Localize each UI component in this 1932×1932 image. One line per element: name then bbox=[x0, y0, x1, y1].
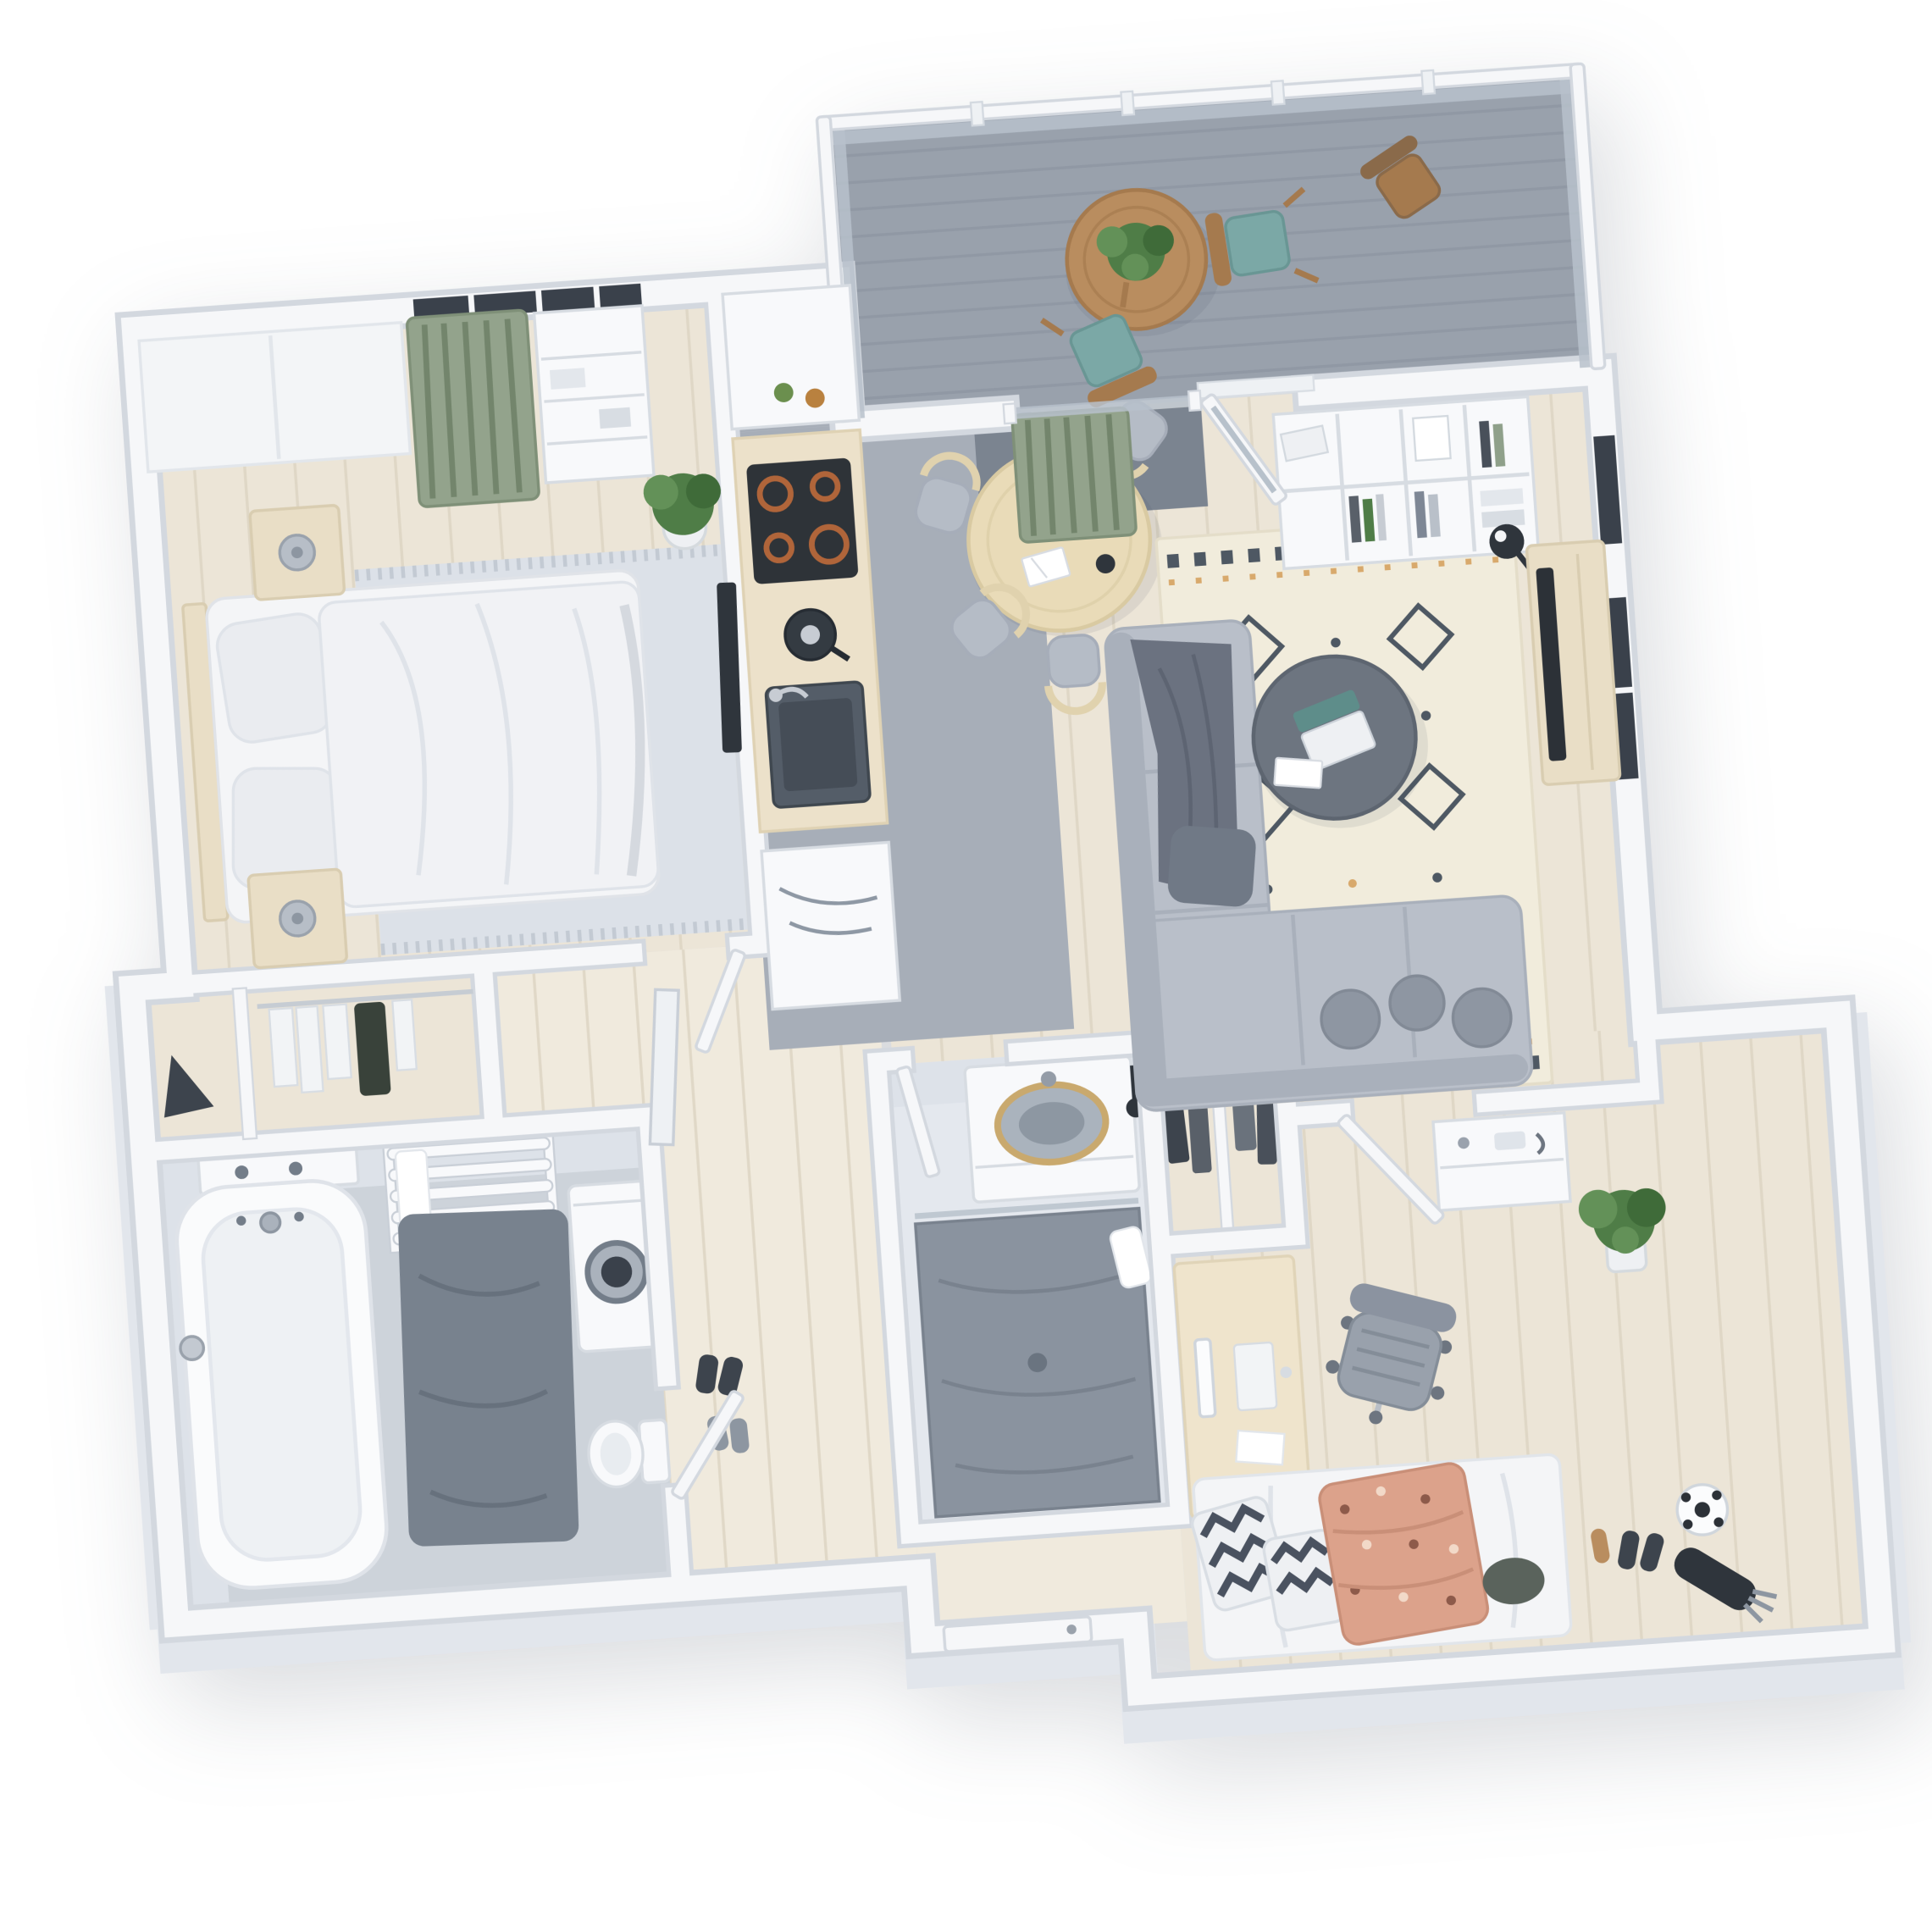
hanging-clothes bbox=[269, 1008, 298, 1087]
tub-faucet bbox=[260, 1212, 280, 1232]
hanging-clothes bbox=[354, 1001, 391, 1096]
shelf-item bbox=[550, 368, 586, 390]
sink-vanity bbox=[965, 1056, 1140, 1203]
shelf-item bbox=[599, 407, 631, 429]
monitor bbox=[1194, 1339, 1215, 1417]
green-curtain bbox=[407, 310, 540, 507]
floor-plan-render bbox=[0, 0, 1932, 1932]
hanging-clothes bbox=[296, 1006, 323, 1093]
entry-console bbox=[1433, 1113, 1570, 1210]
patterned-blanket bbox=[1317, 1461, 1490, 1647]
nightstand bbox=[248, 869, 347, 968]
balcony-door-curtain bbox=[1012, 407, 1137, 543]
single-bed bbox=[1187, 1454, 1571, 1662]
cooktop bbox=[746, 457, 859, 584]
pillow bbox=[214, 611, 336, 745]
toilet bbox=[586, 1418, 670, 1489]
kitchen-sink bbox=[766, 682, 871, 808]
railing-post bbox=[1121, 91, 1134, 115]
folded-item bbox=[1480, 488, 1523, 507]
magazine bbox=[1274, 758, 1322, 789]
railing-post bbox=[1271, 80, 1285, 104]
hanging-clothes bbox=[323, 1005, 351, 1079]
shower-head bbox=[180, 1336, 204, 1360]
bathtub bbox=[169, 1177, 390, 1592]
nightstand bbox=[250, 505, 345, 600]
sideboard-artwork bbox=[761, 842, 900, 1009]
keyboard bbox=[1234, 1342, 1277, 1411]
railing-post bbox=[971, 102, 984, 125]
bathroom-1 bbox=[147, 1121, 681, 1620]
bath-mat bbox=[398, 1209, 579, 1547]
cushion bbox=[1167, 825, 1257, 908]
soccer-ball bbox=[1675, 1483, 1729, 1536]
shelf-unit bbox=[534, 306, 654, 483]
tv-console bbox=[1526, 540, 1620, 785]
double-bed bbox=[182, 569, 660, 925]
storage-box bbox=[1413, 416, 1450, 461]
hanging-clothes bbox=[392, 999, 416, 1071]
leaning-mirror bbox=[650, 989, 678, 1144]
console-item bbox=[1494, 1131, 1526, 1150]
upper-cabinet bbox=[722, 285, 859, 429]
papers bbox=[1236, 1431, 1284, 1464]
railing-post bbox=[1421, 70, 1435, 94]
